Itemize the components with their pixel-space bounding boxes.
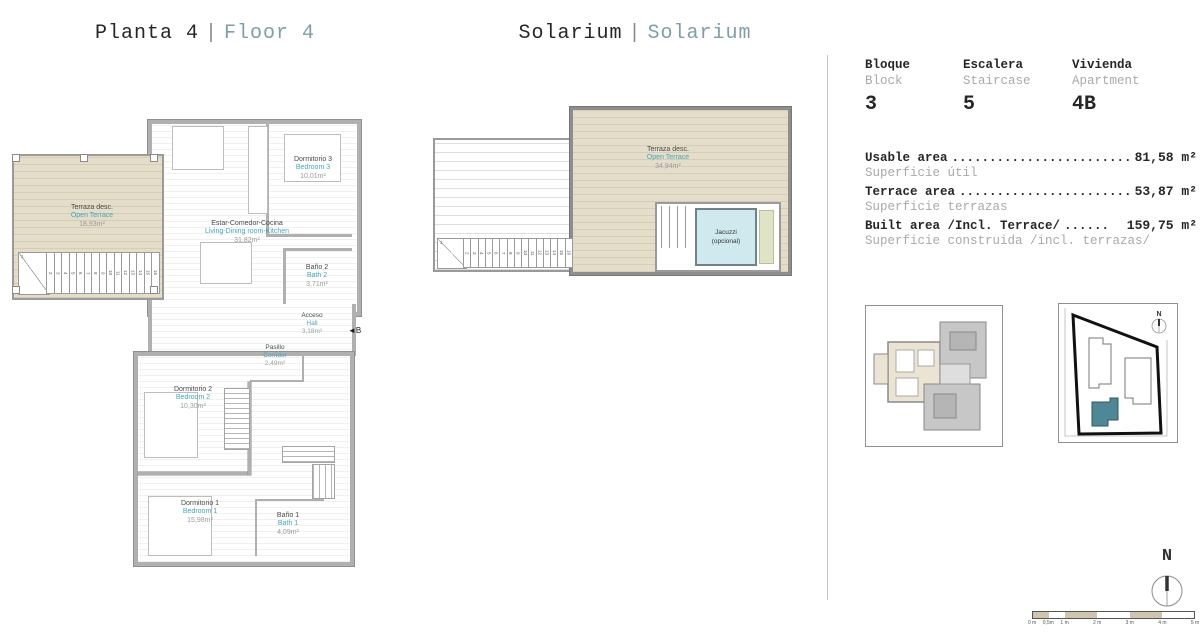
staircase-label-es: Escalera [963,58,1031,74]
corridor-closet [312,464,335,499]
staircase-label-en: Staircase [963,74,1031,90]
solarium-plan: 1 2345678910111213141516 Terraza desc. O… [425,98,795,283]
dot-leader: ........................ [952,151,1131,165]
jacuzzi-label: Jacuzzi [715,228,737,237]
title-floor: Planta 4|Floor 4 [55,22,355,45]
scale-bar: 0 m0,5m1 m2 m3 m4 m5 m [1032,611,1195,633]
unit-block: Bloque Block 3 [865,58,910,117]
title-solarium-en: Solarium [648,22,752,45]
bedroom3-label: Dormitorio 3 Bedroom 3 10,01m² [263,156,363,181]
jacuzzi-enclosure: Jacuzzi (opcional) [655,202,781,272]
usable-area-label-es: Superficie útil [865,166,1197,180]
block-label-en: Block [865,74,910,90]
staircase-value: 5 [963,92,1031,117]
dining-table [200,242,252,284]
corridor-label: Pasillo Corridor 2,49m² [245,344,305,367]
bedroom1-label: Dormitorio 1 Bedroom 1 15,98m² [140,500,260,525]
apartment-label-es: Vivienda [1072,58,1140,74]
areas-list: Usable area ........................ 81,… [865,150,1197,252]
hall-closet [282,446,335,463]
key-plan-drawing [866,306,1002,446]
solarium-terrace-label: Terraza desc. Open Terrace 34,94m² [608,146,728,171]
solarium-stair-treads: 2345678910111213141516 [463,238,573,268]
built-area-label: Built area /Incl. Terrace/ [865,219,1060,233]
usable-area-value: 81,58 m² [1135,150,1197,165]
apartment-label-en: Apartment [1072,74,1140,90]
block-value: 3 [865,92,910,117]
compass-n-label: N [1162,547,1172,566]
title-solarium-es: Solarium [518,22,622,45]
key-plan [865,305,1003,447]
terrace-post [12,154,20,162]
site-plan: N [1058,303,1178,443]
site-plan-drawing: N [1059,304,1177,442]
dot-leader: ...... [1064,219,1123,233]
floorplan-sheet: Planta 4|Floor 4 Solarium|Solarium Bloqu… [0,0,1200,639]
usable-area-label: Usable area [865,151,948,165]
terrace-area-value: 53,87 m² [1135,184,1197,199]
terrace-label: Terraza desc. Open Terrace 18,93m² [32,204,152,229]
solarium-inner-stairs [661,206,691,248]
block-label-es: Bloque [865,58,910,74]
jacuzzi: Jacuzzi (opcional) [695,208,757,266]
site-compass-n: N [1156,311,1161,318]
unit-apartment: Vivienda Apartment 4B [1072,58,1140,117]
title-solarium: Solarium|Solarium [490,22,780,45]
jacuzzi-sublabel: (opcional) [712,237,741,246]
built-area-row: Built area /Incl. Terrace/ ...... 159,75… [865,218,1197,233]
usable-area-row: Usable area ........................ 81,… [865,150,1197,165]
terrace-area-label-es: Superficie terrazas [865,200,1197,214]
title-solarium-separator: | [628,22,641,45]
terrace-post [80,154,88,162]
bedroom2-label: Dormitorio 2 Bedroom 2 10,30m² [133,386,253,411]
terrace-area-label: Terrace area [865,185,955,199]
scale-bar-segments [1032,611,1195,619]
kitchen-counter [172,126,224,170]
title-floor-separator: | [205,22,218,45]
built-area-label-es: Superficie construida /incl. terrazas/ [865,234,1197,248]
bath2-label: Baño 2 Bath 2 3,71m² [282,264,352,289]
bedroom-divider-wall [138,472,250,475]
entrance-marker: ◄B [348,326,361,335]
terrace-post [150,286,158,294]
living-label: Estar-Comedor-Cocina Living-Dining room-… [182,220,312,245]
floor4-stair-treads: 2345678910111213141516 [46,252,160,294]
scale-bar-labels: 0 m0,5m1 m2 m3 m4 m5 m [1032,620,1195,628]
dot-leader: ....................... [959,185,1131,199]
built-area-value: 159,75 m² [1127,218,1197,233]
planter-strip [759,210,774,264]
hall-label: Acceso Hall 3,18m² [277,312,347,335]
terrace-post [12,286,20,294]
bath1-label: Baño 1 Bath 1 4,09m² [253,512,323,537]
terrace-post [150,154,158,162]
unit-staircase: Escalera Staircase 5 [963,58,1031,117]
title-floor-es: Planta 4 [95,22,199,45]
apartment-value: 4B [1072,92,1140,117]
title-floor-en: Floor 4 [224,22,315,45]
vertical-divider [827,55,828,600]
floor4-plan: 1 2345678910111213141516 Terraza desc. O… [10,112,378,574]
terrace-area-row: Terrace area ....................... 53,… [865,184,1197,199]
